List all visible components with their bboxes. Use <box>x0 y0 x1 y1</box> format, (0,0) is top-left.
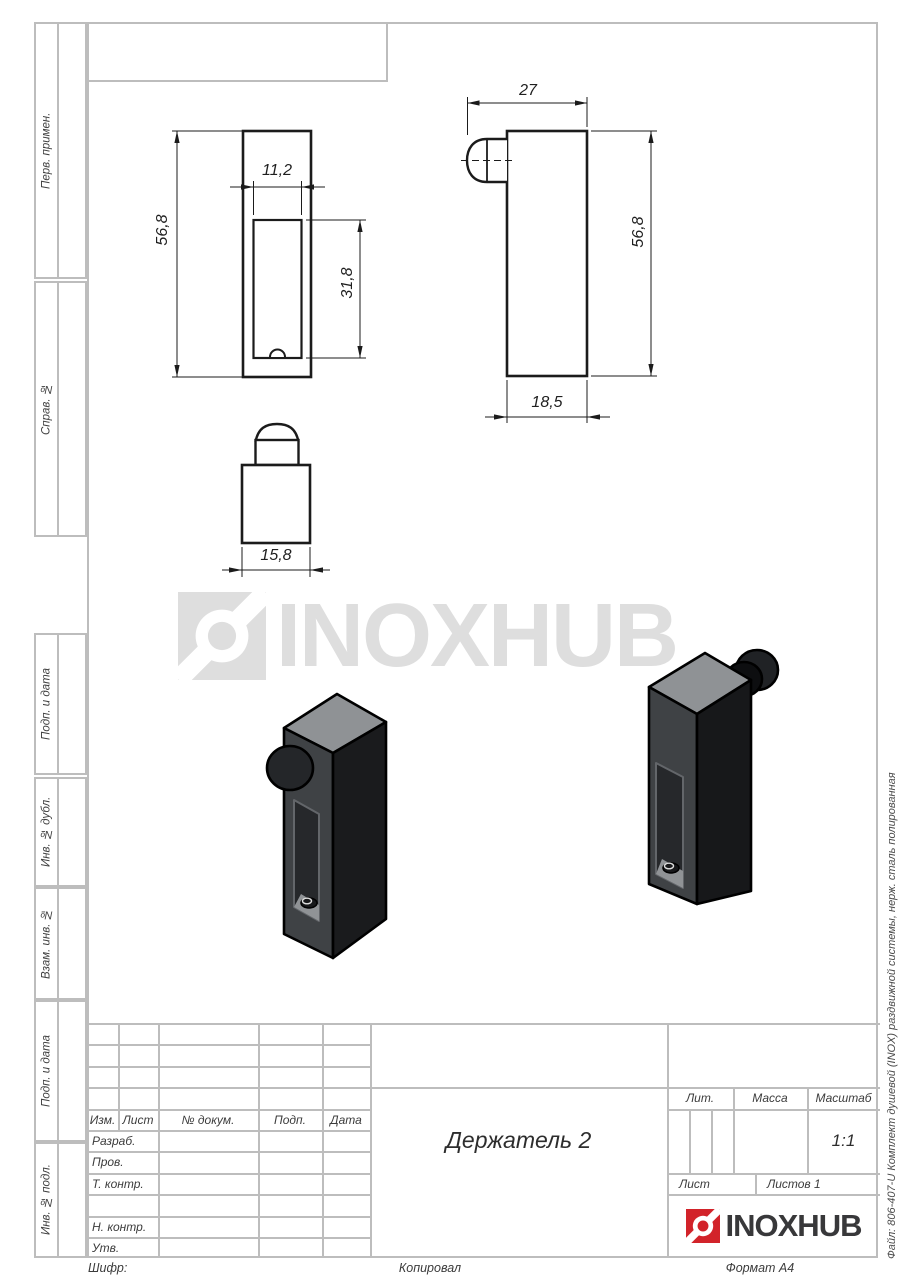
col-header-podp: Подп. <box>258 1109 322 1130</box>
role-n-kontr: Н. контр. <box>87 1216 158 1237</box>
role-blank <box>87 1194 158 1216</box>
file-note: Файл: 806-407-U Комплект душевой (INOX) … <box>886 743 904 1259</box>
footer-format: Формат А4 <box>700 1261 820 1277</box>
lit-label: Лит. <box>667 1087 733 1109</box>
col-header-izm: Изм. <box>87 1109 118 1130</box>
title-block-line <box>711 1109 713 1173</box>
scale-value: 1:1 <box>807 1109 880 1173</box>
margin-label: Перв. примен. <box>36 24 57 277</box>
inoxhub-watermark-logo-icon <box>178 592 266 680</box>
title-block-line <box>87 1023 880 1025</box>
margin-label: Подп. и дата <box>36 635 57 773</box>
margin-label: Инв. № подл. <box>36 1144 57 1256</box>
footer-copied: Копировал <box>350 1261 510 1277</box>
margin-box-podp-data-2: Подп. и дата <box>34 1000 87 1142</box>
footer-cipher: Шифр: <box>88 1261 127 1277</box>
title-block-line <box>87 1044 370 1046</box>
scale-label: Масштаб <box>807 1087 880 1109</box>
role-razrab: Разраб. <box>87 1130 158 1151</box>
role-utv: Утв. <box>87 1237 158 1258</box>
brand-name: INOXHUB <box>726 1208 862 1244</box>
margin-box-inv-podl: Инв. № подл. <box>34 1142 87 1258</box>
sheets-label: Листов 1 <box>755 1173 880 1194</box>
margin-box-podp-data-1: Подп. и дата <box>34 633 87 775</box>
margin-box-perv-primen: Перв. примен. <box>34 22 87 279</box>
margin-box-inv-dubl: Инв. № дубл. <box>34 777 87 887</box>
title-block-line <box>158 1023 160 1258</box>
margin-label: Справ. № <box>36 283 57 535</box>
drawing-sheet: INOXHUB <box>0 0 907 1280</box>
watermark: INOXHUB <box>178 592 677 680</box>
brand-logo: INOXHUB <box>667 1194 880 1258</box>
top-stamp-box <box>87 22 388 82</box>
title-block-line <box>258 1023 260 1258</box>
title-block-line <box>322 1023 324 1258</box>
title-block-line <box>87 1066 370 1068</box>
title-block-line <box>689 1109 691 1173</box>
margin-label: Подп. и дата <box>36 1002 57 1140</box>
role-prov: Пров. <box>87 1151 158 1173</box>
inoxhub-logo-icon <box>686 1208 720 1244</box>
sheet-label: Лист <box>667 1173 755 1194</box>
role-t-kontr: Т. контр. <box>87 1173 158 1194</box>
part-title: Держатель 2 <box>370 1087 667 1194</box>
col-header-list: Лист <box>118 1109 158 1130</box>
margin-box-sprav-no: Справ. № <box>34 281 87 537</box>
margin-label: Взам. инв. № <box>36 889 57 998</box>
col-header-docnum: № докум. <box>158 1109 258 1130</box>
col-header-data: Дата <box>322 1109 370 1130</box>
watermark-text: INOXHUB <box>276 592 677 680</box>
margin-box-vzam-inv: Взам. инв. № <box>34 887 87 1000</box>
mass-label: Масса <box>733 1087 807 1109</box>
margin-label: Инв. № дубл. <box>36 779 57 885</box>
